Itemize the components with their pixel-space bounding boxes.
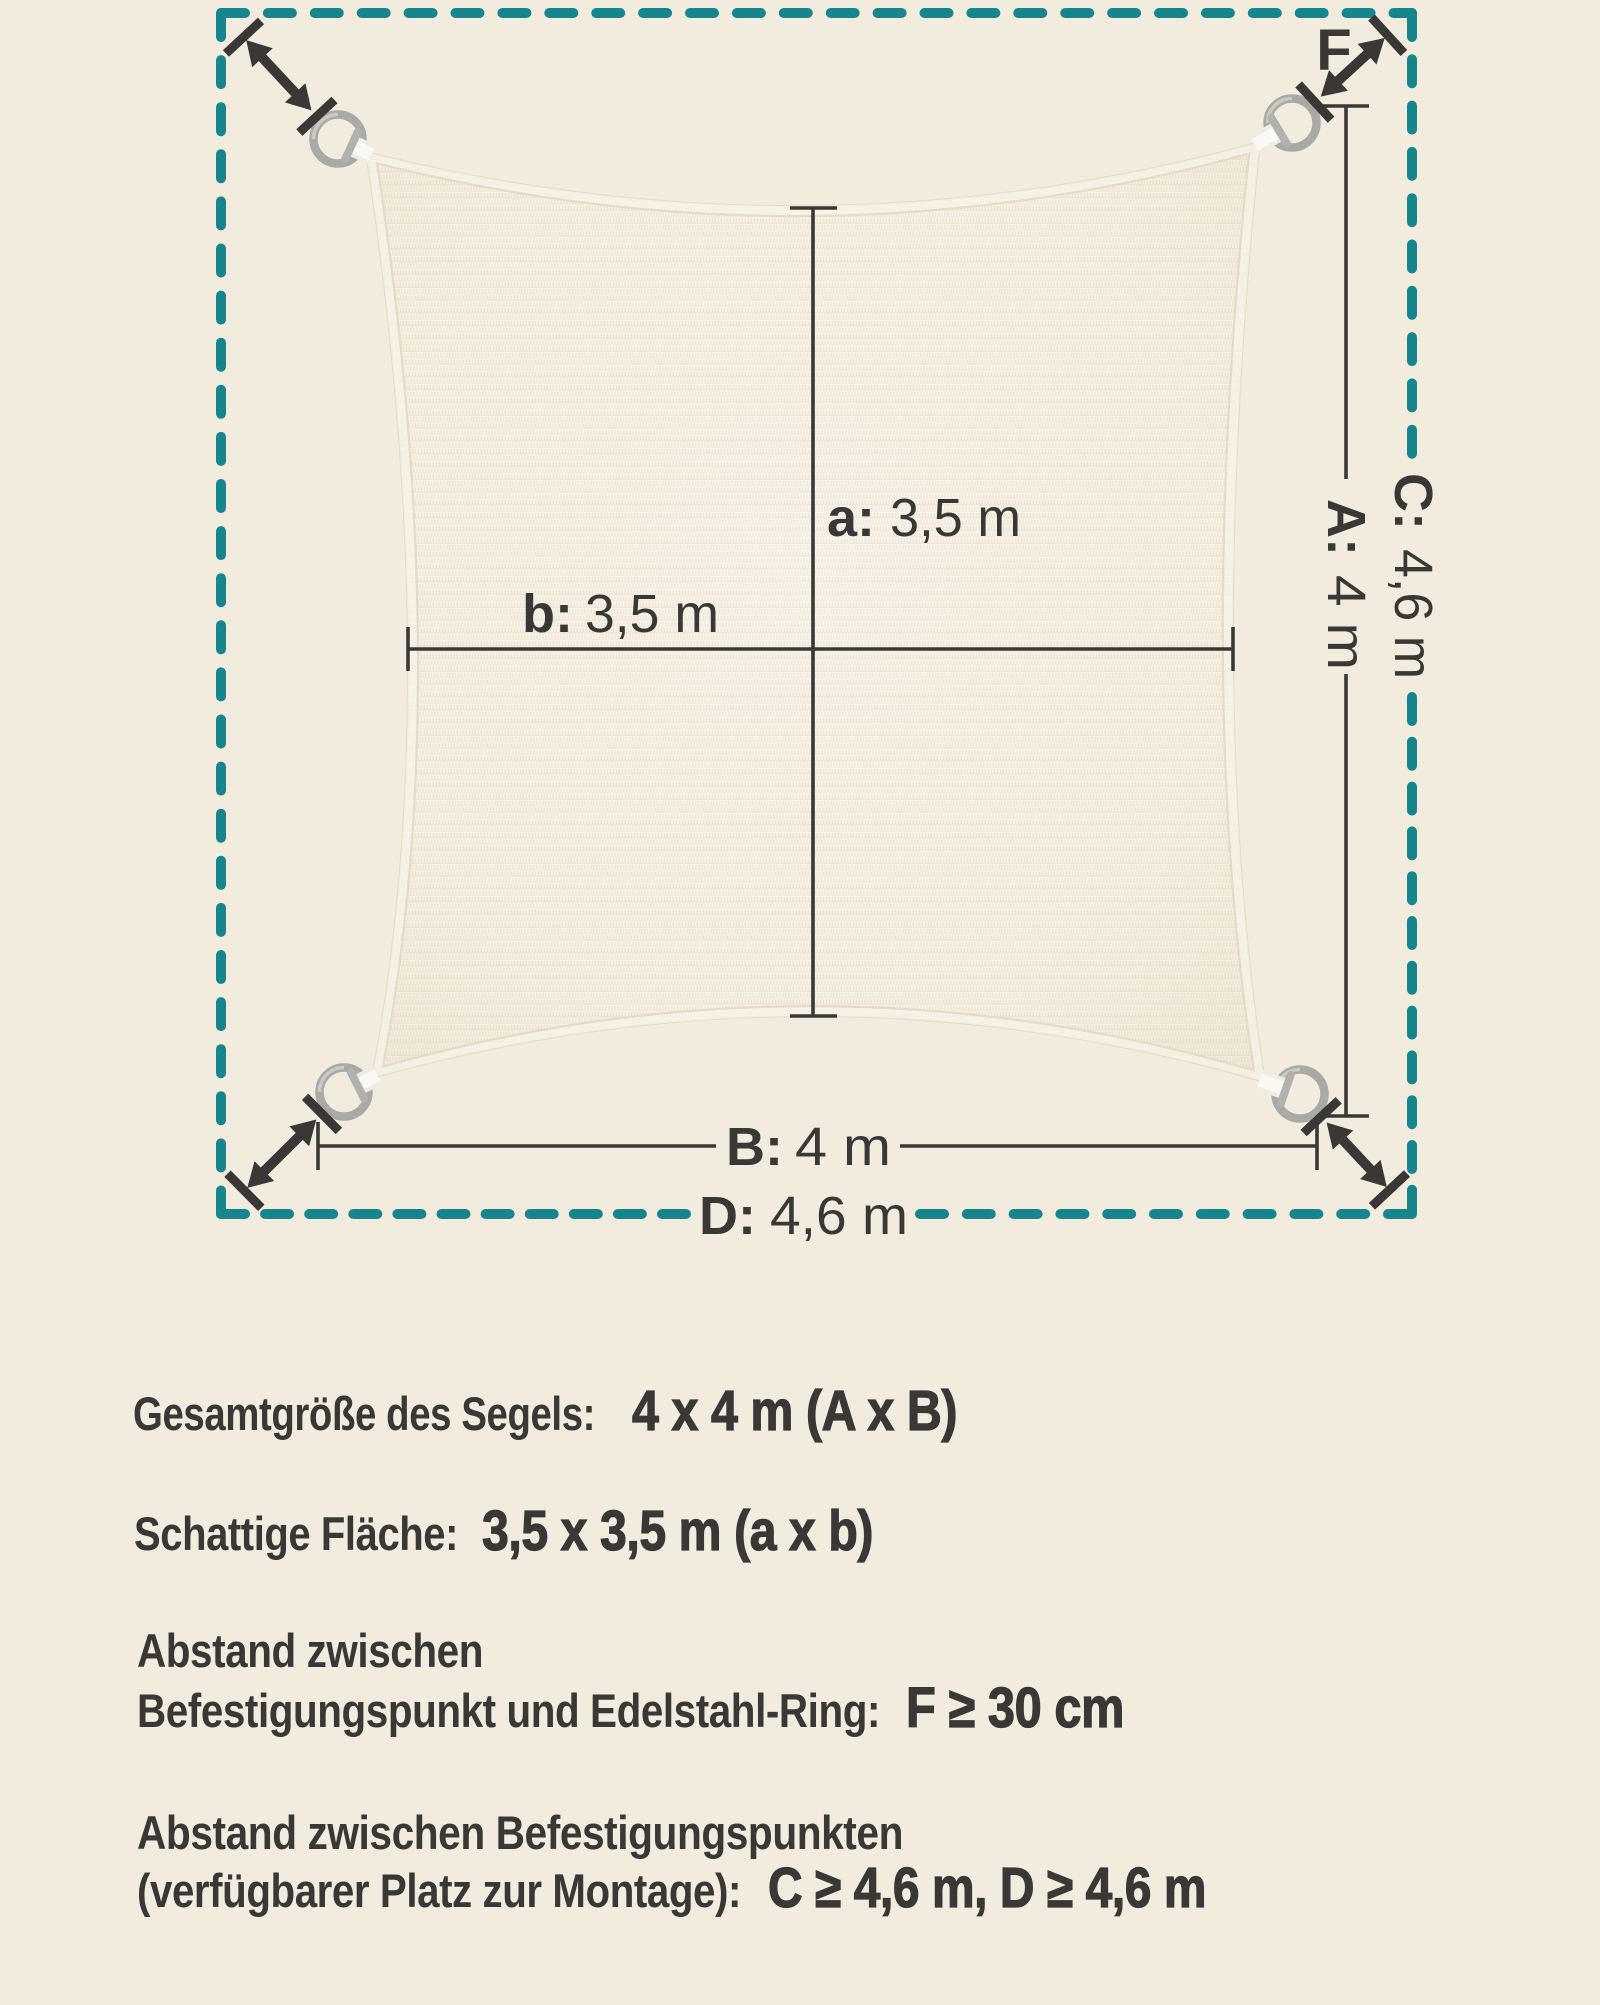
svg-text:Befestigungspunkt und Edelstah: Befestigungspunkt und Edelstahl-Ring:: [137, 1684, 880, 1737]
svg-text:A:: A:: [1316, 499, 1376, 556]
svg-text:(verfügbarer Platz zur Montage: (verfügbarer Platz zur Montage):: [137, 1864, 741, 1917]
svg-text:F: F: [1316, 18, 1351, 83]
svg-text:Schattige Fläche:: Schattige Fläche:: [134, 1507, 458, 1560]
svg-text:4,6 m: 4,6 m: [1383, 549, 1443, 679]
svg-text:C:: C:: [1383, 473, 1443, 530]
svg-text:4,6 m: 4,6 m: [770, 1186, 908, 1246]
svg-text:F ≥ 30 cm: F ≥ 30 cm: [906, 1676, 1124, 1740]
svg-text:C ≥ 4,6 m, D ≥ 4,6 m: C ≥ 4,6 m, D ≥ 4,6 m: [768, 1856, 1206, 1920]
svg-text:3,5 x 3,5 m (a x b): 3,5 x 3,5 m (a x b): [482, 1499, 873, 1563]
svg-text:4 m: 4 m: [795, 1117, 891, 1177]
svg-text:B:: B:: [726, 1117, 783, 1177]
svg-text:Abstand zwischen: Abstand zwischen: [137, 1624, 483, 1677]
svg-text:b:: b:: [522, 584, 573, 644]
svg-text:Gesamtgröße des Segels:: Gesamtgröße des Segels:: [133, 1387, 595, 1440]
svg-text:D:: D:: [699, 1186, 756, 1246]
svg-text:4 m: 4 m: [1316, 575, 1376, 670]
svg-text:3,5 m: 3,5 m: [890, 488, 1021, 548]
svg-text:Abstand zwischen Befestigungsp: Abstand zwischen Befestigungspunkten: [137, 1806, 903, 1859]
svg-text:3,5 m: 3,5 m: [585, 584, 719, 644]
svg-text:a:: a:: [827, 488, 875, 548]
svg-text:4 x 4 m (A x B): 4 x 4 m (A x B): [632, 1379, 957, 1443]
